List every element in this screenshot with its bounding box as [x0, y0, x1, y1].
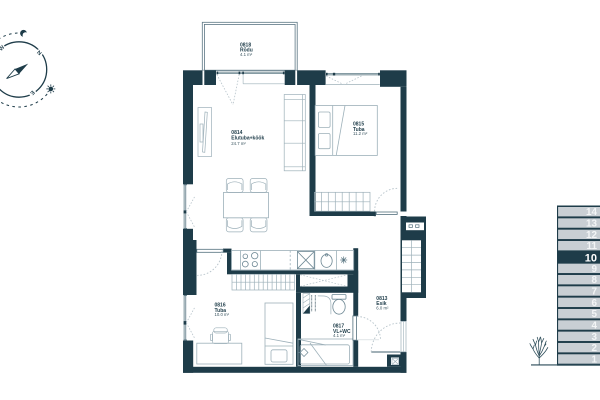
svg-text:6.0 m²: 6.0 m²	[376, 305, 389, 310]
svg-text:4: 4	[592, 321, 598, 332]
svg-text:11: 11	[587, 241, 598, 252]
svg-text:3: 3	[592, 332, 598, 343]
svg-text:6: 6	[592, 298, 598, 309]
svg-text:12: 12	[586, 230, 597, 241]
svg-text:24.7 m²: 24.7 m²	[231, 141, 246, 146]
svg-text:13: 13	[586, 219, 597, 230]
svg-text:10: 10	[585, 252, 597, 264]
svg-text:10.0 m²: 10.0 m²	[215, 312, 230, 317]
svg-text:8: 8	[592, 275, 598, 286]
svg-text:4.1 m²: 4.1 m²	[333, 333, 346, 338]
svg-text:5: 5	[592, 309, 598, 320]
svg-text:4.1 m²: 4.1 m²	[240, 52, 253, 57]
svg-text:11.2 m²: 11.2 m²	[353, 131, 368, 136]
svg-text:7: 7	[592, 287, 598, 298]
svg-text:1: 1	[592, 354, 598, 365]
svg-text:9: 9	[592, 264, 598, 275]
svg-text:2: 2	[592, 343, 598, 354]
svg-text:14: 14	[586, 207, 597, 218]
